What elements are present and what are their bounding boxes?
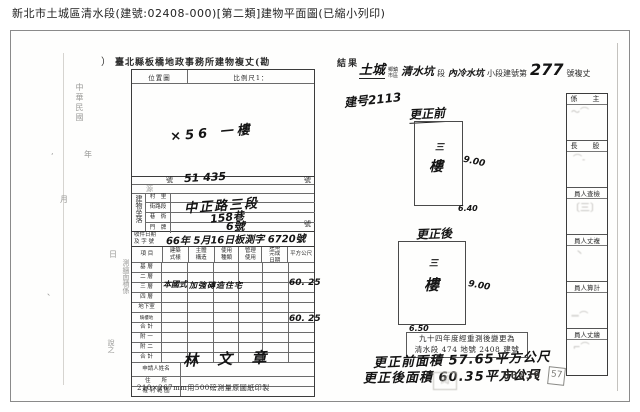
margin-note: 測繪面積係 [121,259,131,294]
page-edge-line [617,43,618,391]
style-handwriting: 本國式 [163,279,187,290]
before-floor-char1: 三 [435,140,444,153]
faint-signature: ⌒- [567,152,607,165]
building-number-handwriting: 277 [530,60,563,79]
table-row-floor1: 基 層 [132,263,314,273]
right-section-header: 土城 鄉鎮市區 清水坑 段 內冷水坑 小段建號第 277 號複丈 [359,59,590,79]
serial-number-stamp: 00039 [503,369,541,382]
col-structure: 主體構造 [189,247,215,262]
address-suffix: 號 [304,219,311,229]
form-title-result: 結果 [337,56,359,69]
page-number-stamp: 57 [547,366,566,386]
before-floor-char2: 樓 [429,156,443,176]
parcel-number-handwriting: 51 435 [184,170,227,185]
stamp-cell-resurveyor: 員人丈複 丶 [567,235,607,282]
scanned-document: , 、 ） 臺北縣板橋地政事務所建物複丈(勘 結果 中華民國 年 月 日 測繪面… [10,30,630,402]
page-title: 新北市土城區清水段(建號:02408-000)[第二類]建物平面圖(已縮小列印) [12,5,385,21]
subsection-print-label: 小段建號第 [487,68,527,79]
before-dim-right: 9.00 [462,155,486,169]
col-item: 項 目 [132,247,163,262]
map-scale-label: 比例尺1： [188,70,314,83]
scan-speck: , [51,147,54,156]
fold-crease-left [63,53,64,385]
table-row-total: 合 計 [132,323,314,333]
table-row-basement: 地下室 [132,303,314,313]
margin-year-label: 年 [84,149,92,160]
building-ref-handwriting: 建号2113 [343,88,402,111]
faint-signature: ᆖ⌒ [567,309,607,322]
faint-signature: 〜⌒ [567,105,607,118]
before-correction-rectangle: 三 樓 [414,121,463,206]
area-total-handwriting: 60. 25 [289,314,321,324]
stamp-cell-draftsman: 員人丈繪 ⌐⌒ [567,329,607,374]
stamp-cell-section-chief: 長 股 ⌒- [567,141,607,188]
col-area: 平方公尺 [288,247,314,262]
applicant-label: 申請人姓名 [132,363,181,376]
margin-month-label: 月 [60,194,68,205]
after-floor-char1: 三 [429,256,438,269]
margin-era-label: 中華民國 [74,83,85,123]
faint-signature: 丶 [567,246,607,259]
faint-signature: ⌐⌒ [567,340,607,353]
receipt-label-1: 收件日期 [134,232,156,238]
town-handwriting: 土城 [359,59,385,79]
viewer-window: 新北市土城區清水段(建號:02408-000)[第二類]建物平面圖(已縮小列印)… [0,0,640,412]
resurvey-print-label: 號複丈 [566,68,590,79]
form-title: 臺北縣板橋地政事務所建物複丈(勘 [115,55,270,68]
col-style: 建築式樣 [163,247,189,262]
after-floor-char2: 樓 [424,274,439,295]
stamp-cell-calculator: 員人算計 ᆖ⌒ [567,282,607,329]
stamp-cell-inspector: 員人查檢 〔三〕 [567,188,607,235]
measurement-table: 項 目 建築式樣 主體構造 使用種類 管理使用 建築完成日期 平方公尺 基 層 … [131,246,315,397]
stray-paren: ） [101,53,111,68]
map-label: 位置圖 [132,70,188,83]
col-usage-type: 使用種類 [215,247,240,262]
applicant-name-handwriting: 林 文 章 [183,346,274,370]
building-location-label: 建物坐落 [134,195,144,229]
town-print-label: 鄉鎮市區 [388,68,398,79]
structure-handwriting: 加強磚造住宅 [189,280,243,291]
table-header-row: 項 目 建築式樣 主體構造 使用種類 管理使用 建築完成日期 平方公尺 [132,247,314,263]
faint-seal-mark: 阅 [433,372,457,390]
stamp-cell-supervisor: 係 主 〜⌒ [567,94,607,141]
section-print-label: 段 [437,68,445,79]
margin-note-2: 說之 [106,339,116,353]
location-map-box: 位置圖 比例尺1： ×56 一樓 [131,69,315,177]
after-dim-right: 9.00 [467,279,491,293]
before-dim-bottom: 6.40 [458,204,478,213]
margin-day-label: 日 [109,249,117,260]
area-floor3-handwriting: 60. 25 [289,278,321,288]
building-location-section: 建物坐落 村 里 街路段 巷 衖 門 牌 中正路三段 158巷 6號 號 [131,193,315,232]
after-correction-rectangle: 三 樓 [398,241,466,325]
loc-row-lane: 巷 衖 [146,213,171,222]
faint-signature: 〔三〕 [567,199,607,214]
col-management: 管理使用 [239,247,262,262]
loc-row-street: 街路段 [146,203,171,212]
resurvey-note-line1: 九十四年度經重測後變更為 [407,333,527,344]
receipt-label-2: 及 字 號 [134,239,154,245]
table-row-annex1: 附 一 [132,333,314,343]
scan-speck: 、 [47,287,55,298]
loc-row-village: 村 里 [146,193,171,202]
section-handwriting: 清水坑 [401,63,434,79]
approval-stamp-column: 係 主 〜⌒ 長 股 ⌒- 員人查檢 〔三〕 員人丈複 丶 員人算計 ᆖ⌒ 員人… [566,93,608,376]
col-completion: 建築完成日期 [262,247,288,262]
table-row-arcade: 騎樓地 [132,313,314,323]
map-annotation-handwriting: ×56 一樓 [169,118,254,144]
after-correction-label: 更正後 [416,224,453,242]
receipt-handwriting: 66年 5月16日板測字 6720號 [166,230,306,247]
receipt-row: 收件日期 及 字 號 66年 5月16日板測字 6720號 [131,231,315,247]
paper-spec-footnote: 210×267mm用500磅測量原圖紙印製 [137,383,270,393]
table-row-floor4: 四 層 [132,293,314,303]
subsection-handwriting: 內冷水坑 [448,66,484,79]
